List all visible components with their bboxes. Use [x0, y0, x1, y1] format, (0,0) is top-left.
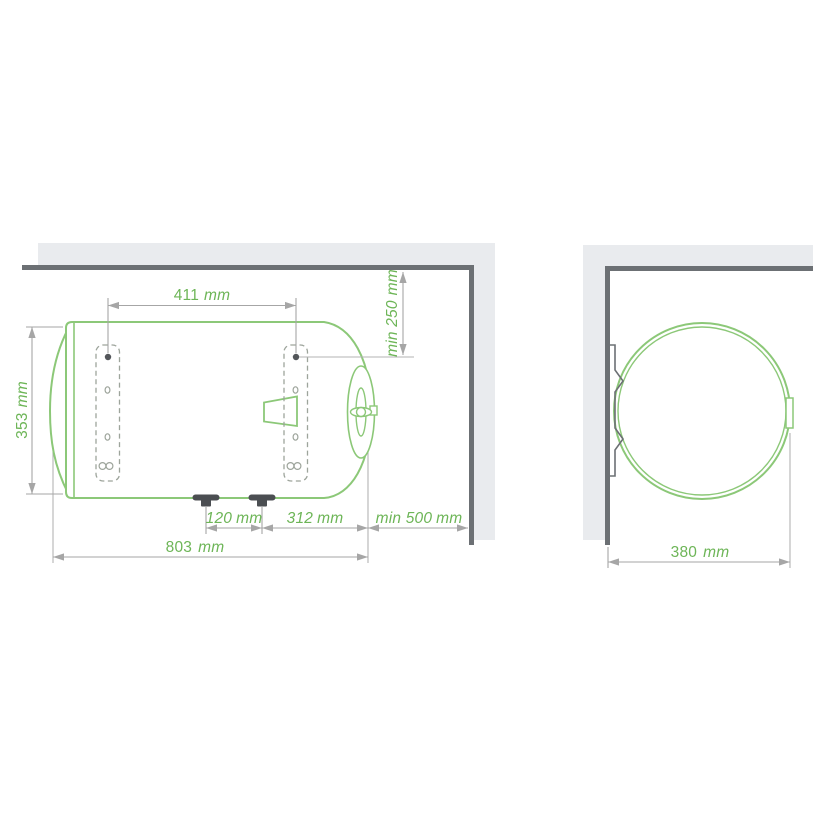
tank-body-outline [66, 322, 371, 498]
dim-label-overall-length: 803mm [166, 539, 225, 556]
tank-cross-section [614, 323, 793, 499]
front-wall-top-edge-line [605, 266, 813, 271]
front-wall-left-edge-line [605, 266, 610, 545]
front-wall-top-surface [583, 245, 813, 268]
dim-diameter [608, 547, 790, 568]
foot-right-tab [257, 500, 267, 507]
foot-left-tab [201, 500, 211, 507]
side-view: 411mm min 250mm 353mm 120mm 312mm min 50… [14, 243, 495, 563]
wall-top-surface [38, 243, 495, 265]
diagram-svg: 411mm min 250mm 353mm 120mm 312mm min 50… [0, 0, 813, 813]
dim-label-body-height: 353mm [14, 381, 31, 439]
wall-right-surface [474, 265, 495, 540]
bracket-anchor-dot-right [293, 354, 299, 360]
dim-label-min-top-clearance: min 250mm [384, 269, 401, 357]
wall-right-edge-line [469, 265, 474, 545]
bracket-anchor-dot-left [105, 354, 111, 360]
valve-hub [357, 408, 366, 417]
dim-label-diameter: 380mm [671, 544, 730, 561]
water-heater-tank [50, 322, 377, 498]
water-heater-dimension-diagram: 411mm min 250mm 353mm 120mm 312mm min 50… [0, 0, 813, 813]
heating-element-cover [264, 397, 297, 427]
dim-label-bracket-spacing: 411mm [174, 287, 231, 304]
wall-top-edge-line [22, 265, 474, 270]
front-view: 380mm [583, 245, 813, 568]
tank-outer-circle [614, 323, 790, 499]
front-wall-left-surface [583, 268, 605, 540]
tank-end-flange [348, 366, 378, 458]
dim-label-foot-to-end: 312mm [287, 510, 344, 527]
dim-label-min-side-clearance: min 500mm [376, 510, 463, 527]
tank-side-connection-tab [786, 398, 793, 428]
dim-label-feet-spacing: 120mm [206, 510, 263, 527]
